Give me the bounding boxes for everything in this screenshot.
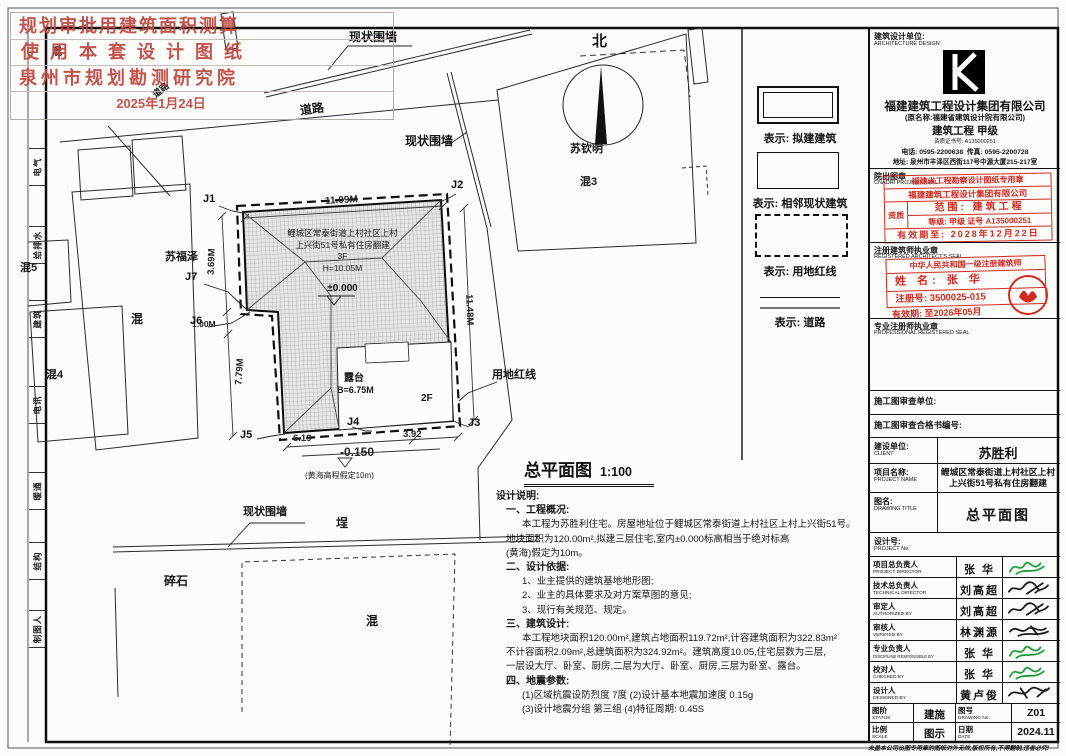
- person-name: 张 华: [957, 641, 1003, 661]
- legend-road-line1: [760, 297, 840, 298]
- strip-cell-plumbing: 给排水: [29, 226, 45, 264]
- notes-line: 2、业主的具体要求及对方案草图的意见;: [496, 589, 864, 603]
- legend-label-existing: 表示: 相邻现状建筑: [735, 195, 865, 211]
- plan-title-text: 总平面图: [524, 461, 592, 480]
- notes-line: 本工程为苏胜利住宅。房屋地址位于鲤城区常泰街道上村社区上村上兴街51号。: [496, 518, 864, 532]
- label-terrace: 露台: [344, 374, 364, 384]
- tb-professional-seal-label-en: PROFESSIONAL REGISTERED SEAL: [874, 330, 969, 336]
- tb-drawing-no-label: 图号: [958, 705, 1009, 716]
- tb-project-no: 设计号: PROJECT No.: [870, 532, 1060, 556]
- tb-scale-value: 图示: [914, 723, 956, 742]
- legend-swatch-redline: [755, 214, 848, 257]
- tb-drawing-title-label-en: DRAWING TITLE: [874, 506, 917, 512]
- notes-line: 二、设计依据:: [496, 561, 864, 575]
- tb-row-technical-director: 技术总负责人TECHNICAL DIRECTOR 刘高超: [870, 577, 1060, 598]
- label-hun-bottom: 混: [366, 615, 378, 627]
- tb-row-authorized-by: 审定人AUTHORIZED BY 刘高超: [870, 598, 1060, 619]
- legend-swatch-existing: [757, 152, 839, 189]
- corner-j5: J5: [240, 430, 252, 441]
- person-name: 黄卢俊: [957, 683, 1003, 703]
- drawing-sheet: 电气 给排水 建筑 电讯 暖通 结构 制图人 现状围墙 道路 道路 现状围墙 北…: [0, 0, 1066, 756]
- tb-client-label-en: CLIENT: [874, 451, 894, 457]
- signature-zhanghua: [1005, 663, 1053, 682]
- strip-cell-hvac: 暖通: [29, 472, 45, 510]
- tb-design-unit-label-en: ARCHITECTURE DESIGN: [874, 41, 940, 47]
- building-annotation-line2: 上兴街51号私有住房翻建: [250, 240, 435, 252]
- corner-j6: J6: [190, 316, 202, 327]
- signature-zhanghua: [1005, 642, 1053, 661]
- tb-review-unit: 施工图审查单位:: [870, 390, 1060, 414]
- approval-stamp-line3: 泉州市规划勘测研究院: [11, 65, 401, 91]
- tb-company-fax: 传真: 0595-2200728: [967, 149, 1029, 156]
- notes-line: 设计说明:: [496, 490, 864, 504]
- strip-cell-electrical: 电气: [29, 148, 45, 186]
- label-red-line: 用地红线: [492, 370, 536, 381]
- strip-cell-structure: 结构: [29, 542, 45, 580]
- notes-line: (1)区域抗震设防烈度 7度 (2)设计基本地震加速度 0.15g: [496, 689, 864, 703]
- label-gravel: 碎石: [164, 575, 188, 587]
- tb-review-no-label: 施工图审查合格书编号:: [874, 419, 962, 431]
- dim-bottom-left: 6.19: [293, 434, 312, 444]
- label-terrace-height: B=6.75M: [337, 386, 374, 395]
- person-name: 林渊源: [957, 620, 1003, 640]
- architect-seal-emblem-icon: [1008, 275, 1048, 315]
- signature-liugaochao: [1005, 600, 1053, 619]
- seal-valid: 有效期至: 2028年12月22日: [885, 226, 1051, 243]
- tb-status-label-en: STATUS: [872, 716, 911, 721]
- tb-client-value: 苏胜利: [938, 443, 1058, 462]
- person-name: 张 华: [957, 557, 1003, 577]
- tb-project-seal: 院出图章 CNADRI PROJECT SEAL 福建省工程勘察设计图纸专用章 …: [870, 168, 1060, 242]
- tb-client: 建设单位: CLIENT 苏胜利: [870, 437, 1060, 463]
- tb-row-project-director: 项目总负责人PROJECT DIRECTOR 张 华: [870, 556, 1060, 577]
- label-su-qinming: 苏钦明: [570, 144, 603, 155]
- approval-stamp-line1: 规划审批用建筑面积测算: [11, 13, 401, 39]
- tb-date-value: 2024.11: [1012, 723, 1060, 742]
- signature-zhanghua: [1005, 558, 1053, 577]
- company-logo-icon: [943, 50, 987, 94]
- label-hun4: 混4: [46, 370, 63, 381]
- corner-j4: J4: [347, 417, 359, 428]
- tb-architect-seal: 注册建筑师执业章 REGISTERED ARCHITECT'S SEAL 中华人…: [870, 242, 1060, 318]
- design-notes: 设计说明: 一、工程概况: 本工程为苏胜利住宅。房屋地址位于鲤城区常泰街道上村社…: [496, 490, 864, 717]
- tb-date-label-en: DATE: [958, 735, 1009, 740]
- person-name: 刘高超: [957, 578, 1003, 598]
- label-hun5: 混5: [20, 263, 37, 274]
- tb-project-no-label-en: PROJECT No.: [874, 546, 910, 552]
- legend-road-line2: [760, 307, 840, 309]
- notes-line: 地块面积为120.00m²,拟建三层住宅,室内±0.000标高相当于绝对标高: [496, 533, 864, 547]
- tb-company-phone-fax: 电话: 0595-2200638 传真: 0595-2200728: [870, 146, 1060, 156]
- strip-cell-telecom: 电讯: [29, 386, 45, 424]
- tb-scale-row: 比例SCALE 图示 日期DATE 2024.11: [870, 722, 1060, 742]
- tb-date-label: 日期: [958, 724, 1009, 735]
- tb-company-grade: 建筑工程 甲级: [870, 123, 1060, 138]
- tb-row-designed-by: 设计人DESIGNED BY 黄卢俊: [870, 682, 1060, 703]
- plan-title: 总平面图1:100: [524, 456, 654, 487]
- design-institute-seal: 福建省工程勘察设计图纸专用章 福建建筑工程设计集团有限公司 资质 范围: 建筑工…: [883, 173, 1052, 244]
- legend-swatch-proposed: [757, 86, 839, 124]
- notes-line: 1、业主提供的建筑基地地形图;: [496, 575, 864, 589]
- label-floor-2f: 2F: [421, 394, 433, 404]
- north-arrow: [563, 65, 643, 145]
- tb-project-name-label-en: PROJECT NAME: [874, 477, 917, 483]
- tb-drawing-no-label-en: DRAWING No.: [958, 716, 1009, 721]
- tb-review-unit-label: 施工图审查单位:: [874, 395, 936, 407]
- tb-status-row: 图阶STATUS 建施 图号DRAWING No. Z01: [870, 703, 1060, 722]
- notes-line: 不计容面积2.09m²,总建筑面积为324.92m²。建筑高度10.05,住宅层…: [496, 646, 864, 660]
- plan-title-scale: 1:100: [600, 465, 632, 479]
- label-su-fuze: 苏福泽: [165, 252, 198, 263]
- notes-line: 本工程地块面积120.00m²,建筑占地面积119.72m²,计容建筑面积为32…: [496, 632, 864, 646]
- corner-j1: J1: [203, 194, 215, 205]
- tb-company-address: 地址: 泉州市丰泽区西街117号中源大厦215-217室: [870, 156, 1060, 166]
- tb-project-name: 项目名称: PROJECT NAME 鲤城区常泰街道上村社区上村 上兴街51号私…: [870, 463, 1060, 492]
- notes-line: 一、工程概况:: [496, 504, 864, 518]
- strip-cell-draftsman: 制图人: [29, 610, 45, 648]
- tb-status-value: 建施: [914, 704, 956, 722]
- tb-drawing-no-value: Z01: [1012, 704, 1060, 722]
- notes-line: 3、现行有关规范、规定。: [496, 604, 864, 618]
- legend-label-redline: 表示: 用地红线: [735, 263, 865, 279]
- corner-j7: J7: [185, 272, 197, 283]
- planning-approval-stamp: 规划审批用建筑面积测算 使用本套设计图纸 泉州市规划勘测研究院 2025年1月2…: [10, 12, 394, 120]
- tb-drawing-title-value: 总平面图: [938, 505, 1058, 525]
- dim-left-upper: 3.69M: [206, 240, 217, 284]
- tb-scale-label: 比例: [872, 724, 911, 735]
- tb-company-phone: 电话: 0595-2200638: [902, 149, 964, 156]
- building-annotation-line4: H=10.05M: [250, 263, 435, 275]
- dim-bottom-right: 3.92: [403, 430, 422, 440]
- label-hun-left: 混: [131, 313, 143, 325]
- approval-stamp-line2: 使用本套设计图纸: [11, 39, 403, 65]
- tb-company-former-name: (原名称:福建省建筑设计院有限公司): [870, 112, 1060, 123]
- seal-zizhi: 资质: [885, 202, 908, 228]
- tb-status-label: 图阶: [872, 705, 911, 716]
- approval-stamp-date: 2025年1月24日: [71, 91, 251, 119]
- tb-project-name-value: 鲤城区常泰街道上村社区上村 上兴街51号私有住房翻建: [938, 467, 1058, 489]
- building-annotation-line1: 鲤城区常泰街道上村社区上村: [250, 228, 435, 240]
- notes-line: (黄海)假定为10m。: [496, 547, 864, 561]
- legend-label-proposed: 表示: 拟建建筑: [735, 130, 865, 146]
- dim-level-note: (黄海高程假定10m): [305, 472, 374, 480]
- label-cheng: 埕: [336, 517, 348, 529]
- title-block: 建筑设计单位: ARCHITECTURE DESIGN 福建建筑工程设计集团有限…: [868, 28, 1060, 742]
- tb-scale-label-en: SCALE: [872, 735, 911, 740]
- tb-drawing-title: 图名: DRAWING TITLE 总平面图: [870, 492, 1060, 532]
- corner-j3: J3: [468, 418, 480, 429]
- notes-line: 三、建筑设计:: [496, 618, 864, 632]
- building-annotation: 鲤城区常泰街道上村社区上村 上兴街51号私有住房翻建 3F H=10.05M: [250, 228, 435, 274]
- tb-review-no: 施工图审查合格书编号:: [870, 414, 1060, 437]
- signature-liugaochao: [1005, 579, 1053, 598]
- tb-company-cert: 资质证书号: A135000251: [870, 137, 1060, 145]
- dim-level: -0.150: [340, 446, 374, 458]
- person-name: 刘高超: [957, 599, 1003, 619]
- label-existing-wall-bottom: 现状围墙: [243, 507, 287, 518]
- notes-line: 一层设大厅、卧室、厨房,二层为大厅、卧室、厨房,三层为卧室、露台。: [496, 660, 864, 674]
- tb-row-checked-by: 校对人CHECKED BY 张 华: [870, 661, 1060, 682]
- strip-cell-architecture: 建筑: [29, 300, 45, 338]
- label-hun3: 混3: [580, 177, 597, 188]
- signature-huanglujun: [1005, 684, 1053, 703]
- notes-line: (3)设计地震分组 第三组 (4)特征周期: 0.45S: [496, 703, 864, 717]
- label-north: 北: [592, 34, 607, 49]
- notes-line: 四、地震参数:: [496, 675, 864, 689]
- legend-label-road: 表示: 道路: [735, 314, 865, 330]
- signature-linyuanyuan: [1005, 621, 1053, 640]
- tb-row-verified-by: 审核人VERIFIED BY 林渊源: [870, 619, 1060, 640]
- title-block-footer-note: 未盖本公司出图专用章的图纸对外无效,版权所有,不得翻制,违者必究!: [868, 743, 1058, 752]
- dim-right: 11.48M: [463, 287, 474, 333]
- tb-row-discipline-responsible: 专业负责人DISCIPLINE RESPONSIBLE BY 张 华: [870, 640, 1060, 661]
- dim-top: 11.09M: [325, 195, 358, 207]
- tb-design-unit: 建筑设计单位: ARCHITECTURE DESIGN 福建建筑工程设计集团有限…: [870, 28, 1060, 168]
- building-level: ±0.000: [300, 283, 385, 294]
- label-existing-wall-right: 现状围墙: [405, 135, 453, 147]
- tb-professional-seal: 专业注册师执业章 PROFESSIONAL REGISTERED SEAL: [870, 318, 1060, 390]
- corner-j2: J2: [451, 180, 463, 191]
- person-name: 张 华: [957, 662, 1003, 682]
- building-annotation-line3: 3F: [250, 251, 435, 263]
